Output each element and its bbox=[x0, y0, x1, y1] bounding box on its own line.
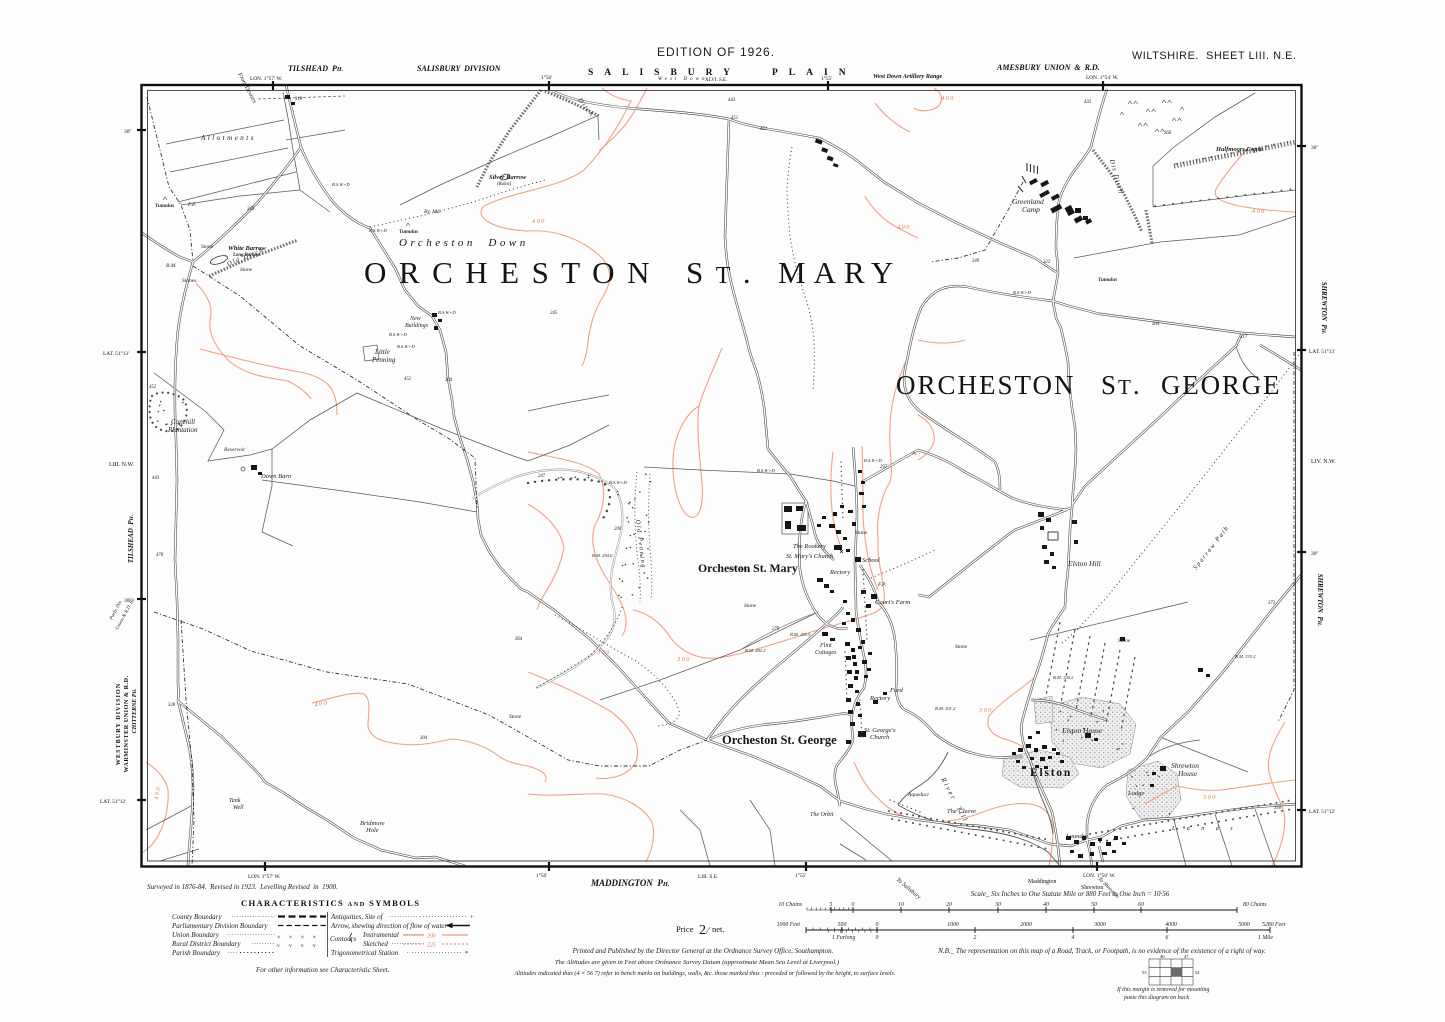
svg-text:B.M.: B.M. bbox=[166, 263, 177, 269]
svg-text:Scale_ Six Inches to One Statu: Scale_ Six Inches to One Statute Mile or… bbox=[971, 890, 1170, 898]
svg-text:Cottages: Cottages bbox=[815, 650, 837, 656]
svg-text:2: 2 bbox=[699, 923, 706, 938]
svg-text:2: 2 bbox=[974, 935, 977, 941]
svg-text:366: 366 bbox=[1164, 131, 1172, 136]
svg-text:F.P.: F.P. bbox=[877, 582, 886, 588]
svg-text:ORCHESTON: ORCHESTON bbox=[364, 255, 662, 290]
svg-text:Aqueduct: Aqueduct bbox=[907, 792, 929, 798]
svg-text:B.S.W+D: B.S.W+D bbox=[397, 344, 415, 349]
svg-text:304: 304 bbox=[445, 378, 453, 383]
svg-text:200: 200 bbox=[614, 527, 622, 532]
svg-text:30″: 30″ bbox=[124, 129, 132, 135]
svg-text:Copehill: Copehill bbox=[171, 418, 195, 426]
svg-text:LIII. N.W.: LIII. N.W. bbox=[109, 462, 135, 468]
svg-text:Tumulus: Tumulus bbox=[155, 203, 174, 209]
svg-text:Stone: Stone bbox=[509, 714, 522, 720]
svg-text:××××: ×××× bbox=[277, 935, 325, 941]
svg-text:vvvv: vvvv bbox=[277, 943, 325, 949]
svg-text:Halfmoors Copse: Halfmoors Copse bbox=[1215, 146, 1263, 153]
svg-text:30″: 30″ bbox=[1311, 551, 1319, 557]
svg-text:The Altitudes are given in Fee: The Altitudes are given in Feet above Or… bbox=[555, 959, 839, 966]
svg-text:478: 478 bbox=[156, 553, 164, 558]
svg-text:LAT. 51°12′: LAT. 51°12′ bbox=[1309, 808, 1335, 815]
svg-text:349: 349 bbox=[972, 259, 980, 264]
svg-text:Altitudes indicated thus (4 ×: Altitudes indicated thus (4 × 56 7) refe… bbox=[513, 970, 895, 977]
svg-text:0: 0 bbox=[876, 935, 879, 941]
svg-text:LAT. 51°12′: LAT. 51°12′ bbox=[100, 798, 126, 805]
svg-text:Laundry: Laundry bbox=[1065, 833, 1088, 840]
svg-text:paste this diagram on back: paste this diagram on back bbox=[1123, 995, 1189, 1001]
svg-text:WILTSHIRE. SHEET LIII. N.E.: WILTSHIRE. SHEET LIII. N.E. bbox=[1132, 50, 1297, 62]
svg-text:3 0 0: 3 0 0 bbox=[1202, 794, 1216, 801]
svg-text:ORCHESTON: ORCHESTON bbox=[896, 370, 1076, 400]
svg-text:House: House bbox=[1177, 769, 1198, 778]
svg-text:297: 297 bbox=[880, 465, 888, 470]
svg-text:1000 Feet: 1000 Feet bbox=[777, 922, 801, 928]
svg-text:B.S.W+D: B.S.W+D bbox=[1013, 290, 1031, 295]
svg-text:Surveyed in 1876-84. Revised: Surveyed in 1876-84. Revised in 1923. Le… bbox=[147, 883, 338, 891]
svg-text:443: 443 bbox=[728, 98, 736, 103]
svg-text:(Ruins): (Ruins) bbox=[497, 182, 512, 187]
svg-text:Down Barn: Down Barn bbox=[260, 473, 291, 480]
svg-text:GEORGE: GEORGE bbox=[1161, 370, 1281, 400]
svg-text:Union Boundary: Union Boundary bbox=[172, 931, 220, 939]
svg-text:452: 452 bbox=[760, 127, 768, 132]
svg-text:Lodge: Lodge bbox=[1127, 790, 1144, 797]
svg-text:Little: Little bbox=[374, 348, 390, 356]
svg-text:452: 452 bbox=[149, 385, 157, 390]
svg-text:225: 225 bbox=[427, 943, 436, 949]
svg-text:B.S.W+D: B.S.W+D bbox=[369, 228, 387, 233]
svg-text:By. Md.: By. Md. bbox=[424, 209, 441, 215]
svg-text:Buildings: Buildings bbox=[405, 323, 429, 329]
svg-text:4 0 0: 4 0 0 bbox=[897, 224, 910, 231]
svg-text:372: 372 bbox=[1268, 601, 1276, 606]
svg-text:1000: 1000 bbox=[947, 922, 959, 928]
svg-text:Stone: Stone bbox=[240, 267, 253, 273]
svg-text:*: * bbox=[465, 950, 468, 957]
svg-text:New: New bbox=[409, 316, 421, 322]
svg-text:30″: 30″ bbox=[1311, 145, 1319, 151]
svg-text:Rural District Boundary: Rural District Boundary bbox=[171, 940, 241, 948]
svg-text:TILSHEAD PH.: TILSHEAD PH. bbox=[288, 64, 344, 73]
svg-text:Ford: Ford bbox=[889, 687, 904, 694]
svg-text:B.M. 333.2: B.M. 333.2 bbox=[1235, 654, 1256, 659]
svg-text:Stone: Stone bbox=[1118, 638, 1131, 644]
svg-text:10 Chains: 10 Chains bbox=[778, 902, 802, 908]
svg-text:Maddington: Maddington bbox=[1028, 879, 1056, 885]
svg-text:LAT. 51°13′: LAT. 51°13′ bbox=[1309, 348, 1335, 355]
svg-text:451: 451 bbox=[731, 116, 738, 121]
svg-text:B.M. 301.2: B.M. 301.2 bbox=[935, 706, 956, 711]
svg-text:B.S.W+D: B.S.W+D bbox=[438, 310, 456, 315]
svg-text:County Boundary: County Boundary bbox=[172, 913, 222, 921]
svg-text:Well: Well bbox=[233, 805, 244, 811]
svg-text:L a n d s: L a n d s bbox=[1171, 826, 1238, 832]
svg-text:1°56′: 1°56′ bbox=[541, 74, 552, 81]
svg-text:304: 304 bbox=[1152, 322, 1160, 327]
svg-text:EDITION OF 1926.: EDITION OF 1926. bbox=[657, 45, 775, 59]
svg-text:Bridmore: Bridmore bbox=[360, 820, 385, 827]
svg-text:30: 30 bbox=[994, 902, 1001, 908]
svg-text:Orcheston Down: Orcheston Down bbox=[399, 237, 529, 249]
svg-text:1°56′: 1°56′ bbox=[536, 872, 547, 879]
svg-text:Rectory: Rectory bbox=[829, 569, 850, 576]
svg-text:20: 20 bbox=[946, 902, 952, 908]
svg-text:279: 279 bbox=[772, 627, 780, 632]
svg-text:Allotments: Allotments bbox=[200, 134, 256, 142]
svg-text:10: 10 bbox=[898, 902, 904, 908]
svg-text:1 Mile: 1 Mile bbox=[1258, 935, 1273, 941]
svg-text:1°55′: 1°55′ bbox=[821, 75, 832, 82]
svg-text:317: 317 bbox=[1240, 335, 1248, 340]
svg-text:MADDINGTON PH.: MADDINGTON PH. bbox=[590, 878, 670, 888]
svg-text:Flint: Flint bbox=[819, 643, 832, 649]
svg-text:5000: 5000 bbox=[1238, 922, 1250, 928]
svg-text:The Orbit: The Orbit bbox=[810, 812, 834, 818]
svg-text:80 Chains: 80 Chains bbox=[1243, 902, 1267, 908]
svg-text:B.S.W+D: B.S.W+D bbox=[389, 332, 407, 337]
svg-text:Plantation: Plantation bbox=[167, 426, 198, 434]
svg-text:60: 60 bbox=[1138, 902, 1144, 908]
svg-text:Church: Church bbox=[870, 734, 889, 741]
svg-text:XLVI. S.E.: XLVI. S.E. bbox=[705, 78, 727, 83]
svg-text:Court's Farm: Court's Farm bbox=[875, 599, 910, 606]
svg-text:5280 Feet: 5280 Feet bbox=[1262, 922, 1286, 928]
svg-text:Silver Barrow: Silver Barrow bbox=[489, 174, 527, 181]
svg-text:54: 54 bbox=[1195, 970, 1200, 975]
svg-text:West Down: West Down bbox=[658, 77, 707, 82]
svg-text:Stones: Stones bbox=[182, 278, 196, 284]
svg-text:1 Furlong: 1 Furlong bbox=[832, 935, 855, 941]
svg-text:AMESBURY UNION & R.D.: AMESBURY UNION & R.D. bbox=[996, 63, 1100, 72]
svg-text:Penning: Penning bbox=[371, 356, 396, 364]
svg-text:0: 0 bbox=[876, 922, 879, 928]
svg-text:LON. 1°57′ W.: LON. 1°57′ W. bbox=[248, 873, 280, 880]
svg-text:WESTBURY DIVISION: WESTBURY DIVISION bbox=[115, 683, 122, 765]
svg-text:Parish Boundary: Parish Boundary bbox=[171, 949, 221, 957]
svg-text:LON. 1°54′ W.: LON. 1°54′ W. bbox=[1086, 74, 1118, 81]
svg-text:1°55′: 1°55′ bbox=[795, 872, 806, 879]
svg-text:4000: 4000 bbox=[1165, 921, 1177, 928]
svg-text:LIV. N.W.: LIV. N.W. bbox=[1311, 459, 1336, 465]
svg-text:ST.: ST. bbox=[1101, 370, 1142, 400]
svg-text:Arrow, shewing direction of fl: Arrow, shewing direction of flow of wate… bbox=[330, 922, 447, 930]
svg-text:School: School bbox=[862, 557, 880, 564]
svg-text:+: + bbox=[470, 914, 474, 921]
svg-text:304: 304 bbox=[420, 736, 428, 741]
svg-text:328: 328 bbox=[168, 703, 176, 708]
svg-text:B.M. 268.5: B.M. 268.5 bbox=[729, 566, 750, 571]
svg-text:LON. 1°56′ W.: LON. 1°56′ W. bbox=[1083, 872, 1115, 879]
svg-text:B.S.W+D: B.S.W+D bbox=[609, 480, 627, 485]
svg-text:200: 200 bbox=[427, 934, 436, 940]
svg-text:Camp: Camp bbox=[1022, 205, 1040, 214]
svg-text:Elston House: Elston House bbox=[1061, 726, 1103, 735]
svg-text:3000: 3000 bbox=[1093, 922, 1106, 928]
svg-text:B.S.W+D: B.S.W+D bbox=[332, 182, 350, 187]
svg-text:4: 4 bbox=[1072, 934, 1075, 941]
svg-text:53: 53 bbox=[1142, 970, 1147, 975]
svg-text:CHARACTERISTICS AND SYMBOLS: CHARACTERISTICS AND SYMBOLS bbox=[241, 898, 420, 908]
svg-text:Tank: Tank bbox=[229, 798, 241, 804]
svg-text:348: 348 bbox=[247, 207, 255, 212]
svg-text:LIII. S.E.: LIII. S.E. bbox=[698, 874, 718, 880]
svg-text:0: 0 bbox=[852, 902, 855, 908]
svg-text:4 0 0: 4 0 0 bbox=[532, 218, 545, 225]
svg-text:500: 500 bbox=[838, 922, 847, 928]
svg-text:F.P.: F.P. bbox=[187, 202, 196, 208]
svg-text:PLAIN: PLAIN bbox=[772, 68, 857, 78]
svg-text:245: 245 bbox=[550, 311, 558, 316]
svg-text:LAT. 51°13′: LAT. 51°13′ bbox=[103, 350, 129, 357]
svg-text:West Down Artillery Range: West Down Artillery Range bbox=[873, 73, 943, 80]
svg-text:Parliamentary Division Boundar: Parliamentary Division Boundary bbox=[171, 922, 269, 930]
svg-text:350: 350 bbox=[1274, 806, 1282, 811]
svg-text:Stone: Stone bbox=[855, 530, 868, 536]
svg-text:3 0 0: 3 0 0 bbox=[676, 656, 690, 663]
svg-text:Rectory: Rectory bbox=[869, 695, 890, 702]
svg-text:B.M. 282.2: B.M. 282.2 bbox=[745, 648, 766, 653]
svg-text:B.S.W+D: B.S.W+D bbox=[757, 468, 775, 473]
svg-text:Elston: Elston bbox=[1030, 767, 1072, 779]
svg-text:3 0 0: 3 0 0 bbox=[978, 707, 992, 714]
svg-text:LON. 1°57′ W.: LON. 1°57′ W. bbox=[250, 75, 282, 82]
svg-text:If this margin is removed for: If this margin is removed for mounting bbox=[1116, 986, 1210, 993]
svg-text:B.S.W+D: B.S.W+D bbox=[864, 458, 882, 463]
svg-text:4 0 0: 4 0 0 bbox=[941, 95, 954, 102]
svg-text:MARY: MARY bbox=[778, 255, 901, 290]
svg-text:364: 364 bbox=[515, 637, 523, 642]
svg-text:47: 47 bbox=[1184, 954, 1189, 959]
svg-text:Reservoir: Reservoir bbox=[223, 447, 246, 453]
svg-text:B.M. 295.5: B.M. 295.5 bbox=[790, 632, 811, 637]
svg-text:Stone: Stone bbox=[955, 644, 968, 650]
svg-text:St. Mary's Church: St. Mary's Church bbox=[786, 553, 833, 560]
svg-text:Tumulus: Tumulus bbox=[399, 229, 418, 235]
svg-text:Tumulus: Tumulus bbox=[1098, 277, 1117, 283]
svg-text:SHREWTON PH.: SHREWTON PH. bbox=[1316, 574, 1324, 627]
svg-text:St. George's: St. George's bbox=[864, 727, 896, 734]
svg-text:318: 318 bbox=[295, 97, 303, 102]
svg-text:Sketched: Sketched bbox=[363, 940, 388, 948]
svg-text:TILSHEAD PH.: TILSHEAD PH. bbox=[127, 515, 135, 563]
svg-text:Orcheston St. George: Orcheston St. George bbox=[722, 733, 837, 747]
svg-text:Instrumental: Instrumental bbox=[362, 931, 399, 939]
svg-text:40: 40 bbox=[1043, 901, 1049, 908]
svg-text:Contours: Contours bbox=[330, 935, 356, 943]
svg-text:B.M. 294.6: B.M. 294.6 bbox=[592, 553, 613, 558]
svg-text:247: 247 bbox=[538, 474, 546, 479]
svg-text:322: 322 bbox=[1043, 260, 1051, 265]
svg-text:4 0 0: 4 0 0 bbox=[1252, 208, 1265, 215]
svg-text:Trigonometrical Station: Trigonometrical Station bbox=[331, 949, 399, 957]
svg-text:Price: Price bbox=[676, 924, 694, 934]
svg-text:443: 443 bbox=[152, 476, 160, 481]
svg-text:CHITTERNE PH.: CHITTERNE PH. bbox=[132, 689, 138, 734]
svg-text:WARMINSTER UNION & R.D.: WARMINSTER UNION & R.D. bbox=[123, 675, 130, 772]
svg-text:2000: 2000 bbox=[1020, 922, 1032, 928]
svg-text:433: 433 bbox=[1084, 100, 1092, 105]
svg-text:Stone: Stone bbox=[744, 603, 757, 609]
svg-text:SHREWTON PH.: SHREWTON PH. bbox=[1320, 282, 1328, 335]
svg-text:Antiquities, Site of: Antiquities, Site of bbox=[330, 913, 384, 921]
svg-text:net.: net. bbox=[712, 924, 725, 934]
svg-text:452: 452 bbox=[404, 377, 412, 382]
svg-text:Stone: Stone bbox=[201, 244, 214, 250]
svg-text:6: 6 bbox=[1166, 935, 1169, 941]
svg-text:SALISBURY DIVISION: SALISBURY DIVISION bbox=[417, 64, 502, 73]
svg-text:B.M. 330.2: B.M. 330.2 bbox=[1053, 675, 1074, 680]
svg-text:N.B._ The representation on th: N.B._ The representation on this map of … bbox=[937, 947, 1266, 955]
svg-text:46: 46 bbox=[1160, 954, 1165, 959]
svg-text:The Rookery: The Rookery bbox=[793, 543, 826, 550]
svg-text:For other information see Char: For other information see Characteristic… bbox=[255, 966, 390, 974]
svg-text:5: 5 bbox=[830, 902, 833, 908]
svg-text:Elston Hill: Elston Hill bbox=[1067, 559, 1101, 568]
svg-text:Hole: Hole bbox=[365, 827, 379, 834]
svg-text:50: 50 bbox=[1091, 902, 1097, 908]
svg-text:Printed and Published by the D: Printed and Published by the Director Ge… bbox=[572, 947, 834, 955]
